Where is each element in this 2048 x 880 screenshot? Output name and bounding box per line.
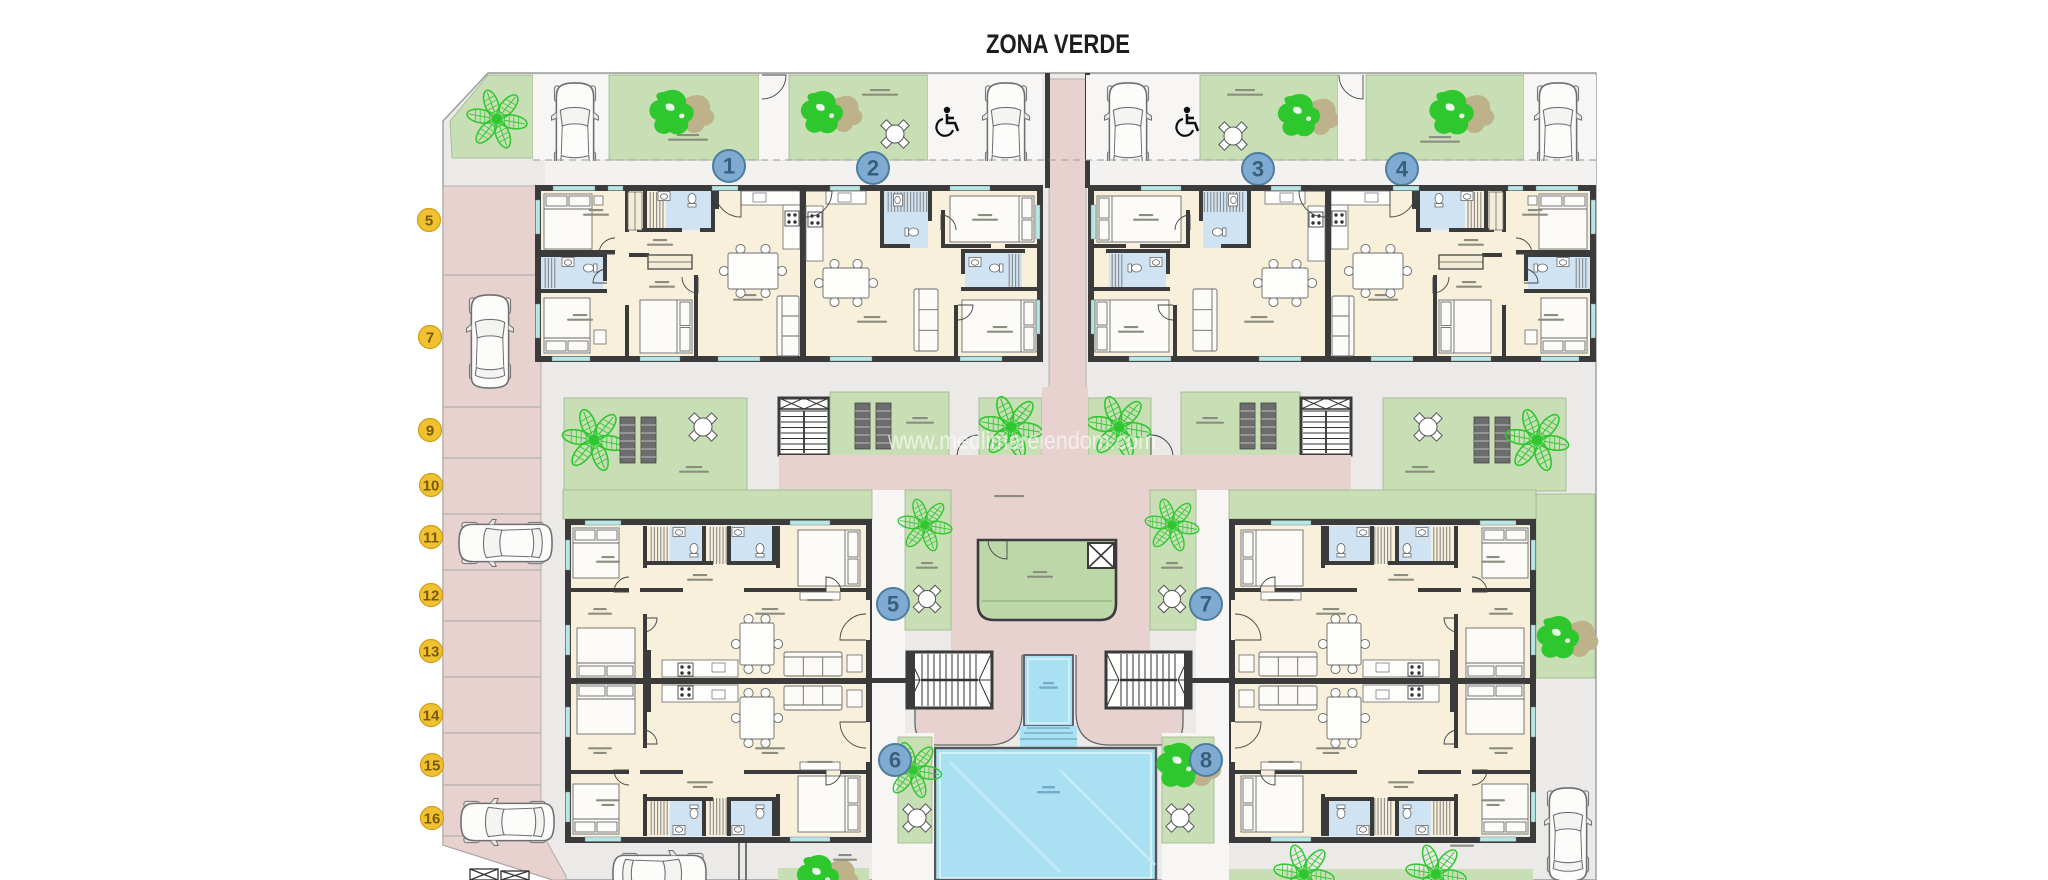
svg-text:6: 6 <box>889 748 901 773</box>
svg-text:1: 1 <box>723 154 735 179</box>
svg-text:5: 5 <box>887 592 899 617</box>
svg-text:www.medlimareiendom.com: www.medlimareiendom.com <box>887 427 1156 455</box>
svg-text:15: 15 <box>424 758 441 775</box>
svg-text:7: 7 <box>426 330 434 347</box>
svg-text:14: 14 <box>423 708 440 725</box>
svg-text:8: 8 <box>1200 748 1212 773</box>
svg-text:16: 16 <box>424 811 441 828</box>
svg-text:10: 10 <box>423 478 440 495</box>
svg-text:12: 12 <box>423 588 440 605</box>
svg-text:13: 13 <box>423 644 440 661</box>
svg-text:3: 3 <box>1252 157 1264 182</box>
svg-text:7: 7 <box>1200 592 1212 617</box>
svg-text:9: 9 <box>426 423 434 440</box>
svg-text:5: 5 <box>425 213 433 230</box>
svg-text:2: 2 <box>867 156 879 181</box>
svg-text:4: 4 <box>1396 157 1409 182</box>
svg-text:ZONA VERDE: ZONA VERDE <box>986 29 1130 59</box>
svg-text:11: 11 <box>423 530 439 547</box>
